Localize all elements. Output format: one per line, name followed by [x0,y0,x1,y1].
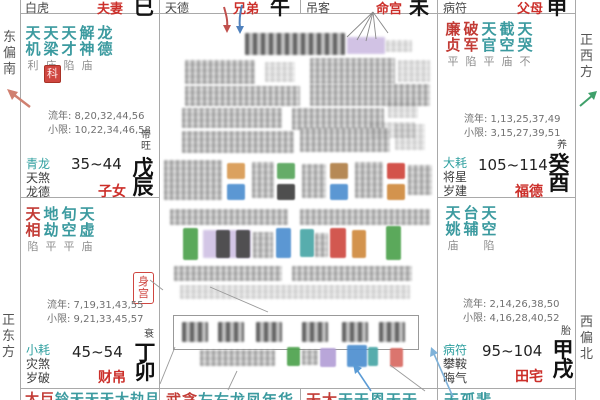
star-name: 左右龙凤年华 [198,391,294,400]
year-god: 灾煞 [26,357,50,371]
decade-age-range: 95~104 [482,342,542,360]
life-stage: 养 [556,140,568,151]
star-brightness: 陷 [462,56,480,68]
star-name: 天相 [25,206,42,238]
star-name: 天虚 [79,206,96,238]
grid-line [575,0,576,400]
palace-cell-bottom-2[interactable]: 武贪左右龙凤年华 [166,389,300,400]
year-god: 将星 [443,170,467,184]
compass-due-east: 正东方 [1,313,16,361]
life-stage: 衰 [143,329,155,340]
star-name: 龙德 [97,25,114,57]
stem-branch: 癸酉 [548,155,570,193]
star-name: 太巨 [25,392,55,400]
star-name: 铃天天天大劫月 [55,392,160,400]
star-name: 破军 [463,21,480,53]
star-name: 天姚 [445,205,462,237]
palace-name: 财帛 [98,367,126,387]
palace-cell-parents[interactable]: 病符 父母 申 [438,0,575,13]
palace-name: 田宅 [515,366,543,386]
summary-box [173,315,419,350]
stem-branch: 甲戌 [552,341,574,379]
palace-cell-bottom-1[interactable]: 太巨铃天天天大劫月 [25,389,159,400]
palace-cell-wealth[interactable]: 天相陷 地劫平 旬空平 天虚庙 身宫 流年: 7,19,31,43,55 小限:… [21,198,159,388]
star-name: 天才 [61,25,78,57]
star-brightness: 庙 [444,240,462,252]
palace-cell-spouse[interactable]: 白虎 夫妻 巳 [21,0,159,13]
xiaoxian-ages: 小限: 9,21,33,45,57 [47,310,144,325]
star-name: 天孤蜚 [444,391,492,400]
star-name: 天机 [25,25,42,57]
star-brightness: 陷 [480,240,498,252]
stem-branch: 丁卯 [134,344,156,382]
stem-branch: 戊辰 [132,159,154,197]
compass-arrow-northeast [580,91,597,106]
star-name: 天官 [481,21,498,53]
xiaoxian-ages: 小限: 10,22,34,46,58 [48,121,151,136]
liunian-ages: 流年: 1,13,25,37,49 [464,110,561,125]
year-god: 天煞 [26,171,50,185]
decade-age-range: 105~114 [478,156,548,174]
star-brightness: 平 [60,241,78,253]
year-god: 攀鞍 [443,357,467,371]
star-name: 地劫 [43,206,60,238]
compass-west-by-north: 西偏北 [579,315,594,363]
liunian-ages: 流年: 2,14,26,38,50 [463,295,560,310]
star-brightness: 庙 [78,60,96,72]
star-brightness: 利 [24,60,42,72]
star-brightness: 庙 [498,56,516,68]
ziwei-chart: 东偏南 正东方 正西方 西偏北 白虎 夫妻 巳 天德 兄弟 午 吊客 命宫 未 … [0,0,600,400]
palace-cell-property[interactable]: 天姚庙 台辅 天空陷 流年: 2,14,26,38,50 小限: 4,16,28… [438,198,575,388]
star-name: 天天恩天天 [338,391,418,400]
star-name: 台辅 [463,205,480,237]
star-name: 天空 [481,205,498,237]
star-brightness: 不 [516,56,534,68]
liunian-ages: 流年: 7,19,31,43,55 [47,296,144,311]
star-name: 天太 [306,391,338,400]
grid-line [300,388,301,400]
palace-cell-siblings[interactable]: 天德 兄弟 午 [160,0,300,13]
year-god: 岁建 [443,184,467,198]
palace-cell-fortune[interactable]: 廉贞平 破军陷 天官平 截空庙 天哭不 流年: 1,13,25,37,49 小限… [438,14,575,197]
decade-age-range: 35~44 [71,155,122,173]
hua-ke-badge: 科 [44,65,61,83]
year-god: 晦气 [443,371,467,385]
year-god: 龙德 [26,185,50,199]
palace-cell-bottom-3[interactable]: 天太天天恩天天 [306,389,436,400]
star-name: 武贪 [166,391,198,400]
palace-cell-life[interactable]: 吊客 命宫 未 [301,0,437,13]
star-name: 廉贞 [445,21,462,53]
star-brightness: 平 [444,56,462,68]
palace-cell-bottom-4[interactable]: 天孤蜚 [444,389,574,400]
liunian-ages: 流年: 8,20,32,44,56 [48,107,145,122]
life-stage: 胎 [560,326,572,337]
year-god: 岁破 [26,371,50,385]
star-name: 解神 [79,25,96,57]
star-brightness: 陷 [24,241,42,253]
xiaoxian-ages: 小限: 3,15,27,39,51 [464,124,561,139]
star-name: 天梁 [43,25,60,57]
decade-age-range: 45~54 [72,343,123,361]
compass-due-west: 正西方 [579,33,594,81]
censored-center-panel [160,13,437,388]
star-brightness: 陷 [60,60,78,72]
star-brightness: 平 [42,241,60,253]
year-god: 病符 [443,343,467,357]
star-brightness: 庙 [78,241,96,253]
star-name: 旬空 [61,206,78,238]
year-god: 大耗 [443,156,467,170]
year-god: 小耗 [26,343,50,357]
star-name: 截空 [499,21,516,53]
star-name: 天哭 [517,21,534,53]
compass-east-by-south: 东偏南 [2,30,17,78]
palace-cell-children[interactable]: 天机利 天梁庙 天才陷 解神庙 龙德 科 流年: 8,20,32,44,56 小… [21,14,159,197]
year-god: 青龙 [26,157,50,171]
xiaoxian-ages: 小限: 4,16,28,40,52 [463,309,560,324]
life-stage: 帝旺 [140,130,152,152]
star-brightness: 平 [480,56,498,68]
